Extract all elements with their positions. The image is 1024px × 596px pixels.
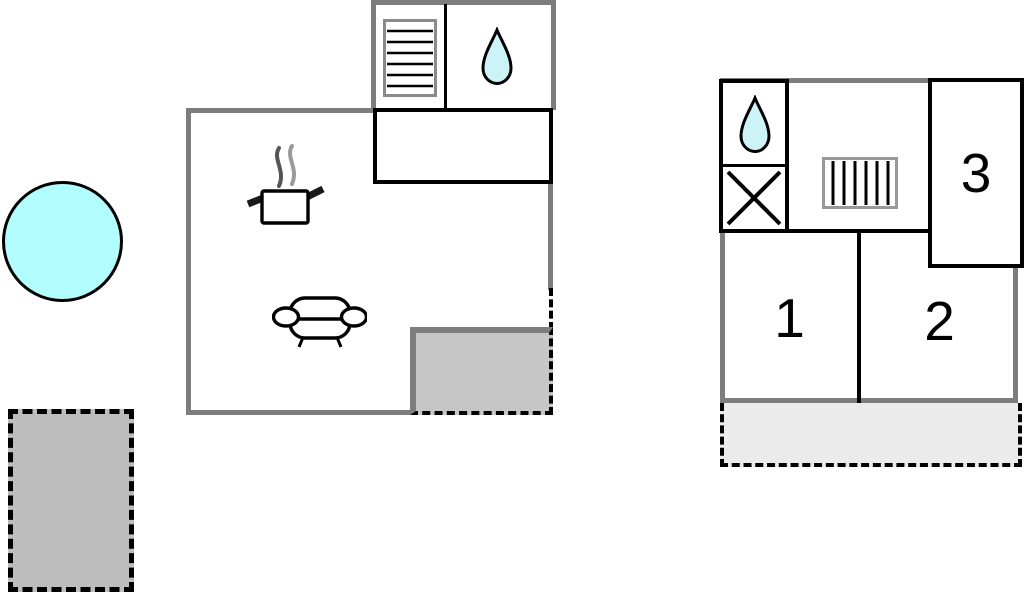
sofa-icon: [272, 292, 367, 348]
stairs-icon: [822, 157, 898, 209]
pool-circle: [2, 181, 123, 302]
ground-floor-top-wall: [186, 108, 376, 113]
room-2-label: 2: [924, 294, 955, 349]
terrace-plot: [8, 409, 134, 592]
entrance-hall: [373, 108, 553, 184]
water-drop-icon: [738, 95, 772, 155]
ground-floor-right-wall-dashed: [549, 288, 553, 330]
shower-x-icon: [723, 167, 785, 229]
stairs-icon: [383, 19, 437, 97]
ground-floor-bottom-wall: [186, 410, 416, 415]
upper-floor-terrace: [720, 403, 1022, 467]
room-2: 2: [861, 240, 1018, 403]
water-drop-icon: [480, 27, 514, 87]
ground-floor-terrace: [410, 327, 553, 415]
room-3-label: 3: [961, 146, 992, 201]
room-1: 1: [722, 233, 857, 403]
stove-pot-icon: [245, 142, 325, 226]
utility-block-divider-wall: [444, 4, 447, 110]
room-1-label: 1: [774, 291, 805, 346]
